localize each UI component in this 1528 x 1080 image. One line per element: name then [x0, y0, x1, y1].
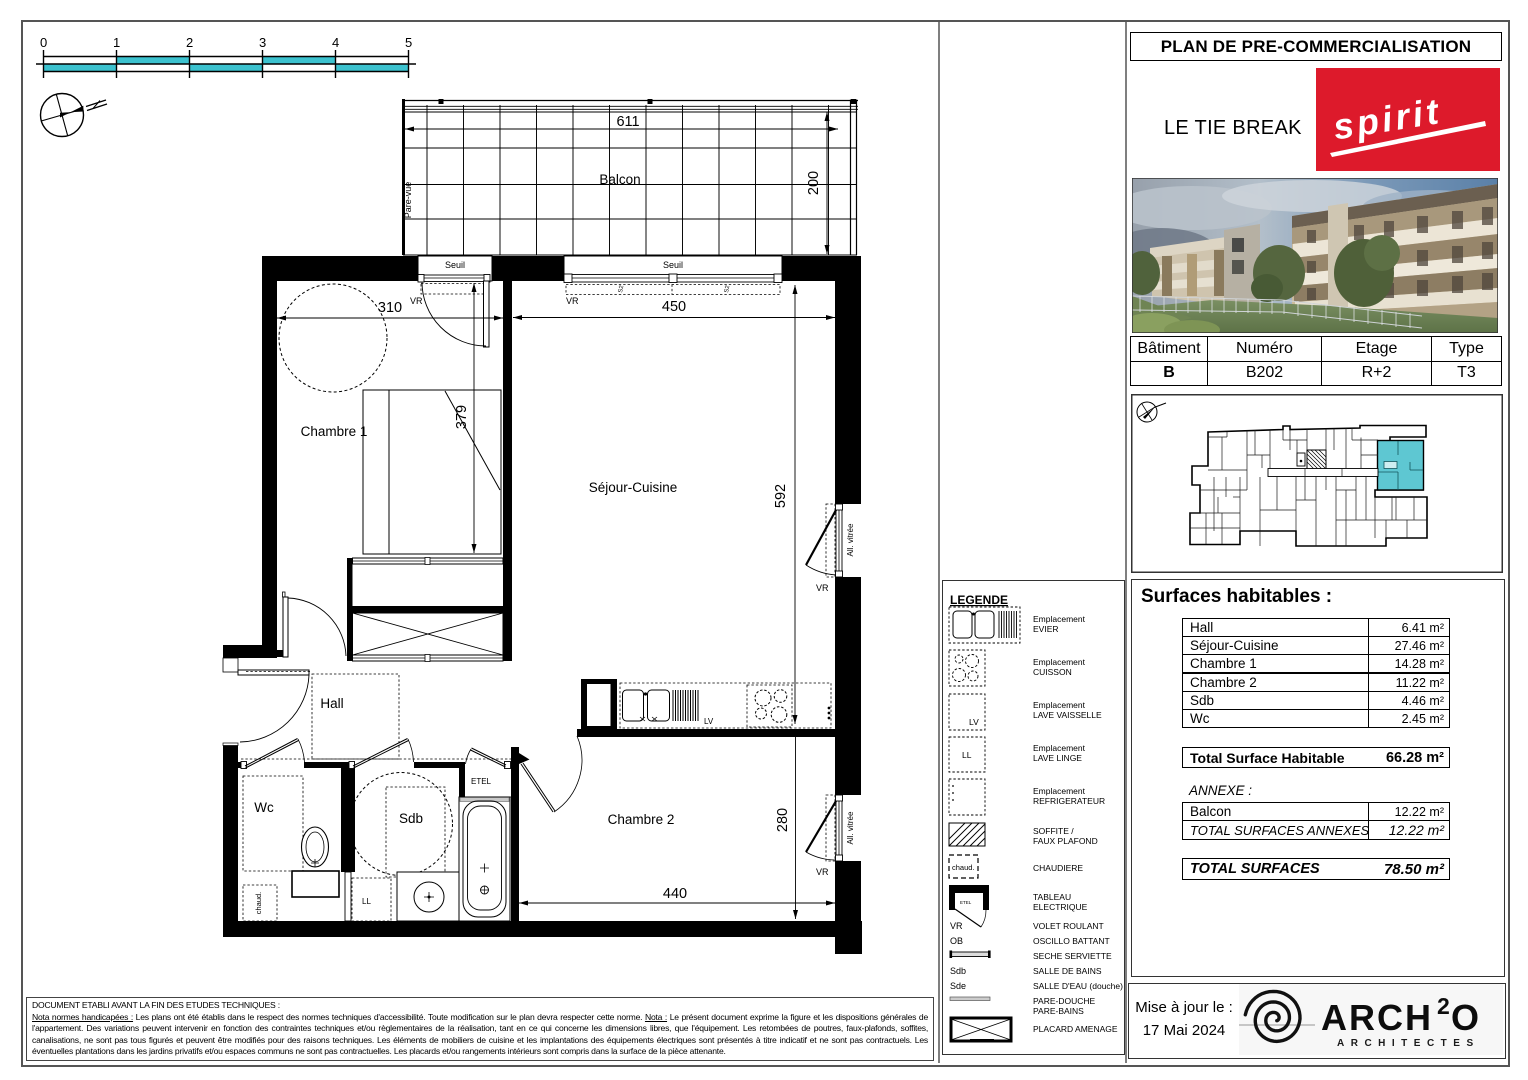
svg-text:Emplacement: Emplacement — [1033, 657, 1086, 667]
svg-text:280: 280 — [775, 808, 791, 832]
svg-text:TABLEAU: TABLEAU — [1033, 892, 1071, 902]
svg-text:LEGENDE: LEGENDE — [950, 593, 1008, 607]
svg-text:2: 2 — [1437, 993, 1450, 1019]
svg-text:OB: OB — [950, 936, 963, 946]
svg-text:chaud.: chaud. — [254, 892, 263, 915]
svg-text:Emplacement: Emplacement — [1033, 700, 1086, 710]
svg-text:SECHE SERVIETTE: SECHE SERVIETTE — [1033, 951, 1112, 961]
svg-text:5: 5 — [405, 35, 412, 50]
svg-text:PARE-DOUCHE: PARE-DOUCHE — [1033, 996, 1096, 1006]
svg-text:310: 310 — [378, 300, 402, 316]
svg-text:Séjour-Cuisine: Séjour-Cuisine — [589, 480, 678, 495]
svg-text:Wc: Wc — [254, 800, 274, 815]
svg-text:SALLE D'EAU (douche): SALLE D'EAU (douche) — [1033, 981, 1123, 991]
svg-text:611: 611 — [616, 114, 639, 130]
svg-text:LV: LV — [969, 717, 979, 727]
svg-text:ETEL: ETEL — [471, 777, 492, 786]
svg-text:2: 2 — [186, 35, 193, 50]
svg-text:EVIER: EVIER — [1033, 624, 1059, 634]
svg-text:Pare-vue: Pare-vue — [403, 182, 413, 219]
svg-text:OSCILLO BATTANT: OSCILLO BATTANT — [1033, 936, 1110, 946]
svg-text:Emplacement: Emplacement — [1033, 786, 1086, 796]
svg-text:SALLE DE BAINS: SALLE DE BAINS — [1033, 966, 1102, 976]
svg-text:ETEL: ETEL — [960, 900, 972, 905]
svg-text:LL: LL — [962, 750, 972, 760]
svg-text:450: 450 — [662, 299, 686, 315]
svg-text:LL: LL — [362, 897, 371, 906]
svg-text:592: 592 — [773, 484, 789, 508]
svg-text:Balcon: Balcon — [599, 172, 640, 187]
svg-text:SOFFITE /: SOFFITE / — [1033, 826, 1074, 836]
svg-text:Chambre 2: Chambre 2 — [608, 812, 675, 827]
svg-text:VOLET ROULANT: VOLET ROULANT — [1033, 921, 1104, 931]
svg-text:Emplacement: Emplacement — [1033, 743, 1086, 753]
svg-text:VR: VR — [566, 296, 579, 306]
svg-text:LAVE LINGE: LAVE LINGE — [1033, 753, 1082, 763]
svg-text:VR: VR — [816, 867, 829, 877]
svg-text:REFRIGERATEUR: REFRIGERATEUR — [1033, 796, 1105, 806]
svg-text:chaud.: chaud. — [952, 863, 975, 872]
svg-text:1: 1 — [113, 35, 120, 50]
svg-text:VR: VR — [816, 583, 829, 593]
svg-text:0: 0 — [40, 35, 47, 50]
svg-text:Sdb: Sdb — [950, 966, 966, 976]
svg-text:Seuil: Seuil — [445, 260, 465, 270]
svg-text:Emplacement: Emplacement — [1033, 614, 1086, 624]
svg-text:ARCH: ARCH — [1321, 997, 1433, 1038]
svg-text:S2: S2 — [618, 284, 625, 293]
svg-text:Chambre 1: Chambre 1 — [301, 424, 368, 439]
svg-text:FAUX PLAFOND: FAUX PLAFOND — [1033, 836, 1098, 846]
svg-text:200: 200 — [806, 171, 822, 195]
svg-text:All. vitrée: All. vitrée — [846, 811, 855, 844]
svg-text:LAVE VAISSELLE: LAVE VAISSELLE — [1033, 710, 1102, 720]
svg-text:VR: VR — [950, 921, 963, 931]
svg-text:3: 3 — [259, 35, 266, 50]
svg-text:379: 379 — [454, 405, 470, 429]
svg-text:Sde: Sde — [950, 981, 966, 991]
svg-text:CUISSON: CUISSON — [1033, 667, 1072, 677]
svg-text:Hall: Hall — [320, 696, 343, 711]
svg-text:PARE-BAINS: PARE-BAINS — [1033, 1006, 1084, 1016]
svg-text:4: 4 — [332, 35, 339, 50]
svg-text:440: 440 — [663, 886, 687, 902]
svg-text:Sdb: Sdb — [399, 811, 423, 826]
svg-text:CHAUDIERE: CHAUDIERE — [1033, 863, 1083, 873]
svg-text:S2: S2 — [724, 284, 731, 293]
svg-text:ARCHITECTES: ARCHITECTES — [1337, 1038, 1480, 1049]
svg-text:All. vitrée: All. vitrée — [846, 523, 855, 556]
svg-text:ELECTRIQUE: ELECTRIQUE — [1033, 902, 1088, 912]
svg-text:PLACARD AMENAGE: PLACARD AMENAGE — [1033, 1024, 1118, 1034]
svg-text:LV: LV — [704, 717, 714, 726]
svg-text:VR: VR — [410, 296, 423, 306]
svg-text:Seuil: Seuil — [663, 260, 683, 270]
svg-text:O: O — [1451, 997, 1479, 1038]
